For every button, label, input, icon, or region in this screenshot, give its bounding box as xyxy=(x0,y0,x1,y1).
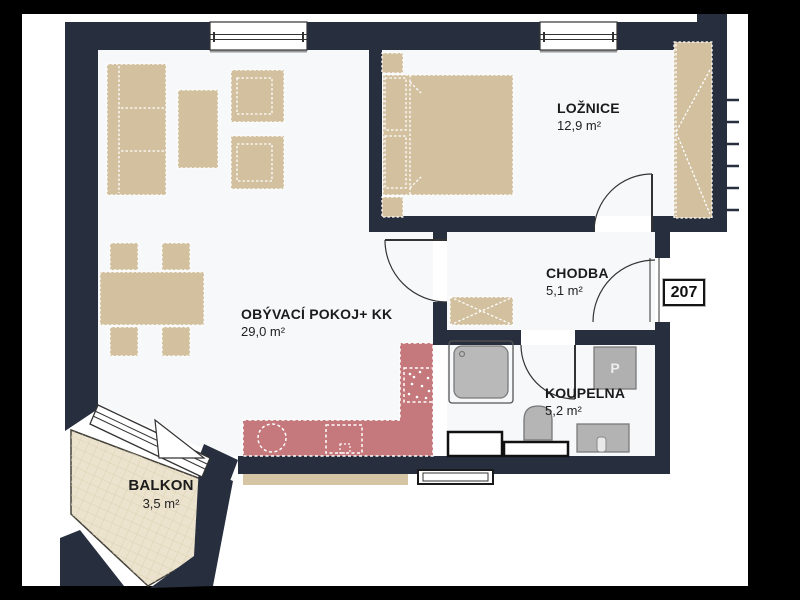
room-name: BALKON xyxy=(113,477,209,494)
bedroom-label: LOŽNICE 12,9 m² xyxy=(557,100,620,134)
chair xyxy=(162,327,190,356)
dining-table xyxy=(100,272,204,325)
living-room-label: OBÝVACÍ POKOJ+ KK 29,0 m² xyxy=(241,306,392,340)
room-name: LOŽNICE xyxy=(557,100,620,116)
nightstand xyxy=(382,53,403,73)
unit-number-badge: 207 xyxy=(663,279,705,306)
wardrobe xyxy=(674,42,712,218)
bed xyxy=(383,75,513,195)
bedroom-window xyxy=(540,22,617,52)
room-area: 12,9 m² xyxy=(557,119,620,134)
room-area: 3,5 m² xyxy=(113,497,209,512)
coffee-table xyxy=(178,90,218,168)
washer-label: P xyxy=(610,360,619,376)
room-name: KOUPELNA xyxy=(545,385,625,401)
bathroom-label: KOUPELNA 5,2 m² xyxy=(545,385,625,419)
sofa xyxy=(107,64,166,195)
exterior-ticks xyxy=(727,100,739,210)
room-area: 5,1 m² xyxy=(546,284,609,299)
bath-niche xyxy=(448,432,502,456)
room-area: 29,0 m² xyxy=(241,325,392,340)
living-room-window xyxy=(210,22,307,52)
hall-label: CHODBA 5,1 m² xyxy=(546,265,609,299)
nightstand xyxy=(382,197,403,217)
bath-niche xyxy=(504,442,568,456)
chair xyxy=(162,243,190,270)
room-name: CHODBA xyxy=(546,265,609,281)
balcony-label: BALKON 3,5 m² xyxy=(113,477,209,512)
sink-basin xyxy=(597,437,606,452)
shower xyxy=(454,346,508,398)
floor-plan: P OBÝVACÍ POKOJ+ KK 29,0 m² LOŽNICE 12,9… xyxy=(0,0,800,600)
lower-window xyxy=(418,470,493,484)
room-area: 5,2 m² xyxy=(545,404,625,419)
room-name: OBÝVACÍ POKOJ+ KK xyxy=(241,306,392,322)
chair xyxy=(110,327,138,356)
exterior-ledge xyxy=(243,474,408,485)
chair xyxy=(110,243,138,270)
